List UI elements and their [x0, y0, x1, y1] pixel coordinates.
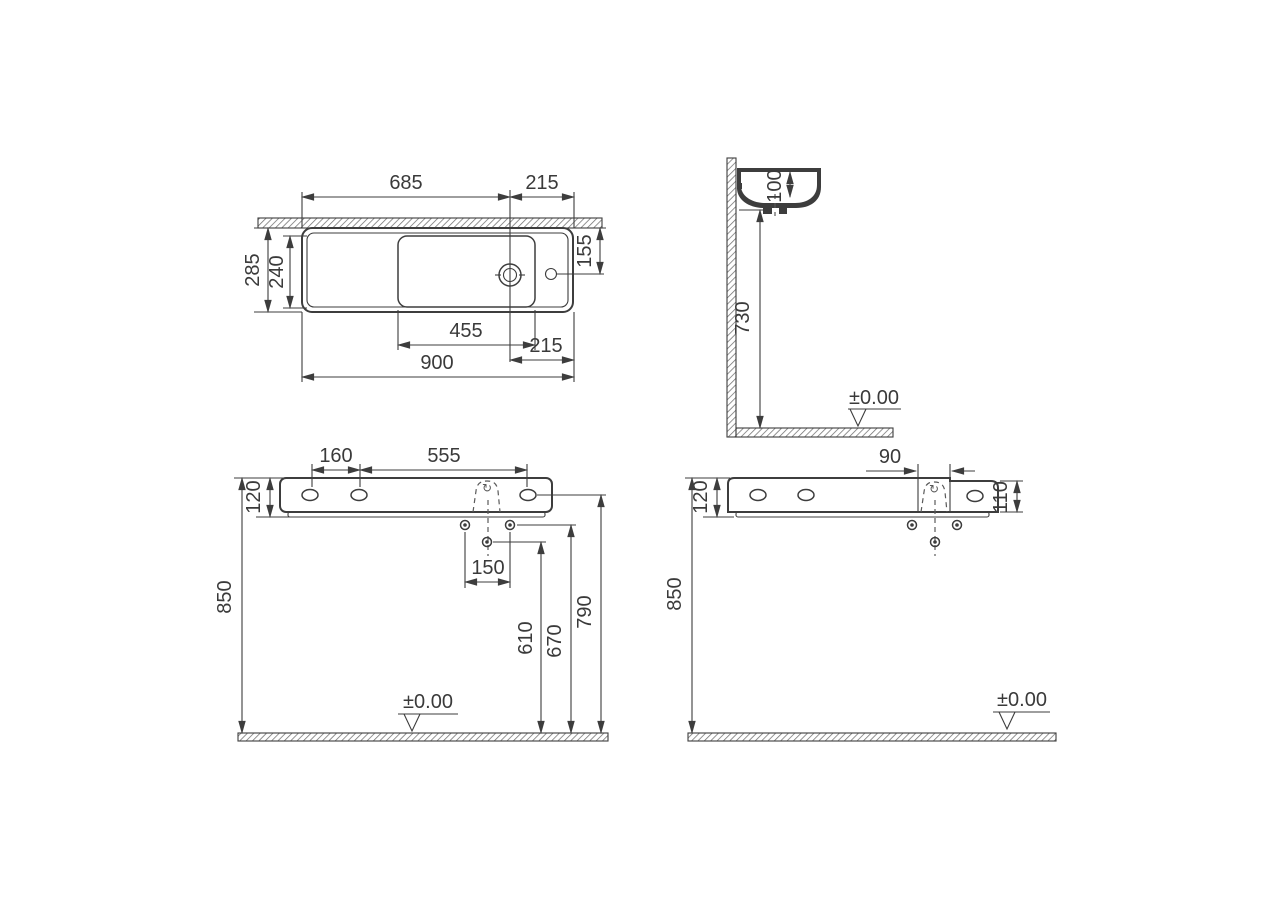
dim-label-100: 100 — [764, 169, 786, 202]
dim-label-555: 555 — [427, 445, 460, 467]
dim-label-215-top: 215 — [525, 172, 558, 194]
fixing-holes — [908, 521, 962, 547]
dim-label-120: 120 — [690, 480, 712, 513]
dim-label-120: 120 — [243, 480, 265, 513]
dim-label-155: 155 — [574, 234, 596, 267]
dim-label-160: 160 — [319, 445, 352, 467]
datum-marker: ±0.00 — [398, 691, 458, 731]
dim-label-900: 900 — [420, 352, 453, 374]
dim-label-850: 850 — [214, 580, 236, 613]
floor-hatch — [688, 733, 1056, 741]
fixing-holes — [461, 521, 515, 547]
drain-stub — [763, 208, 772, 214]
datum-triangle-icon — [404, 714, 420, 731]
siphon-icon: ↻ — [929, 482, 939, 496]
dim-label-685: 685 — [389, 172, 422, 194]
basin-rear-outline — [728, 478, 998, 512]
basin-front-outline — [280, 478, 552, 512]
washbasin-technical-drawing: 685 215 285 240 155 455 215 900 100 730 … — [0, 0, 1280, 900]
side-section-view: 100 730 ±0.00 — [727, 158, 901, 437]
floor-hatch — [238, 733, 608, 741]
datum-label: ±0.00 — [997, 689, 1047, 711]
siphon-icon: ↻ — [482, 481, 492, 495]
datum-marker: ±0.00 — [848, 387, 901, 426]
dim-label-850: 850 — [664, 577, 686, 610]
front-view: ↻ 160 555 120 850 150 610 — [214, 445, 608, 741]
wall-section-hatch — [258, 218, 602, 228]
mounting-detail — [737, 183, 742, 189]
dim-label-240: 240 — [266, 255, 288, 288]
dim-label-285: 285 — [242, 253, 264, 286]
dim-label-790: 790 — [574, 595, 596, 628]
basin-outline — [302, 228, 573, 312]
plan-view: 685 215 285 240 155 455 215 900 — [242, 172, 606, 382]
dim-label-455: 455 — [449, 320, 482, 342]
datum-label: ±0.00 — [849, 387, 899, 409]
dim-label-730: 730 — [732, 301, 754, 334]
datum-marker: ±0.00 — [993, 689, 1050, 729]
dim-label-670: 670 — [544, 624, 566, 657]
datum-label: ±0.00 — [403, 691, 453, 713]
dim-label-215-bottom: 215 — [529, 335, 562, 357]
rear-view: ↻ 90 120 850 110 ±0.00 — [664, 446, 1056, 741]
drain-stub — [779, 208, 787, 214]
wall-hatch — [727, 158, 736, 437]
datum-triangle-icon — [850, 409, 866, 426]
drawing-sheet: 685 215 285 240 155 455 215 900 100 730 … — [0, 0, 1280, 900]
dim-label-150: 150 — [471, 557, 504, 579]
floor-hatch — [736, 428, 893, 437]
datum-triangle-icon — [999, 712, 1015, 729]
dim-label-610: 610 — [515, 621, 537, 654]
dim-label-110: 110 — [990, 481, 1012, 513]
dim-label-90: 90 — [879, 446, 901, 468]
